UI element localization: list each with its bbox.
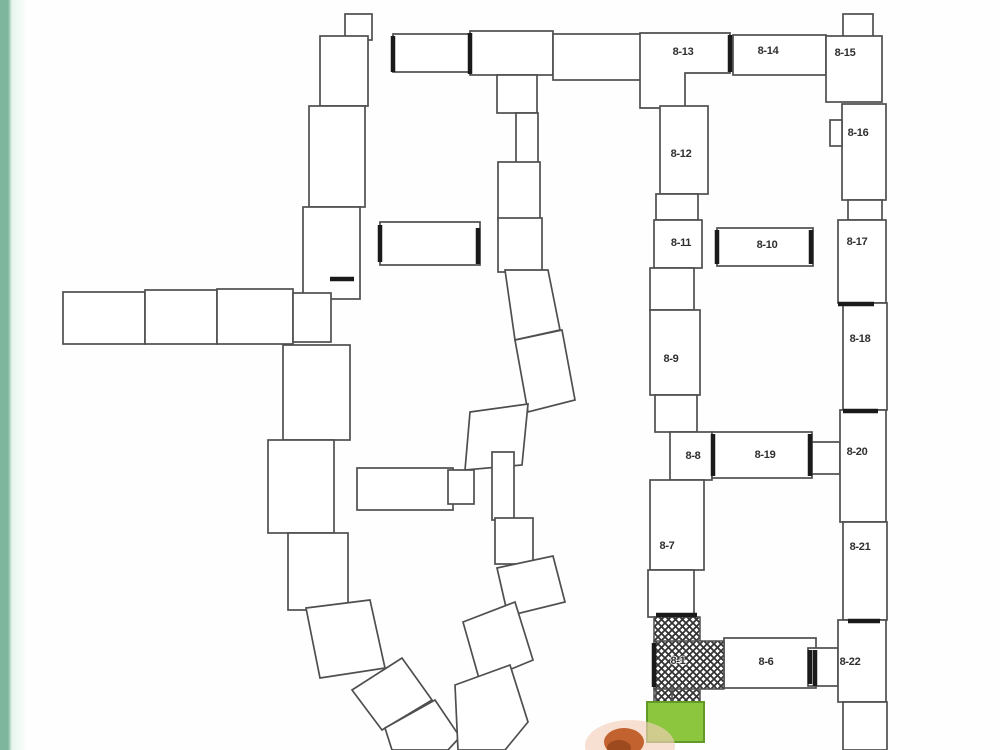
building-label-8-14: 8-14	[758, 45, 780, 57]
building-outline	[357, 468, 453, 510]
building-outline	[516, 113, 538, 165]
hatched-area	[654, 641, 724, 689]
building-outline	[63, 292, 145, 344]
building-outline	[498, 218, 542, 272]
building-outline	[650, 268, 694, 310]
building-outline	[843, 14, 873, 38]
building-outline	[448, 470, 474, 504]
building-outline	[293, 293, 331, 342]
building-label-8-19: 8-19	[755, 449, 776, 461]
building-outline	[650, 480, 704, 570]
building-outline	[842, 104, 886, 200]
site-plan-map: 8-18-68-78-88-98-108-118-128-138-148-158…	[0, 0, 1000, 750]
building-outline	[497, 75, 537, 113]
building-outline	[303, 207, 360, 299]
building-outline	[830, 120, 842, 146]
building-outlines-connector-bars	[712, 35, 840, 688]
building-outline	[495, 518, 533, 564]
building-outline	[843, 303, 887, 410]
building-outlines-middle-column	[640, 33, 730, 617]
building-label-8-10: 8-10	[757, 239, 778, 251]
building-outline	[648, 570, 694, 617]
building-outline	[470, 31, 553, 75]
building-label-8-7: 8-7	[660, 540, 675, 552]
bold-junction-lines	[330, 33, 880, 687]
building-outlines-right-column	[826, 14, 887, 750]
building-label-8-6: 8-6	[759, 656, 774, 668]
building-outline	[812, 442, 840, 474]
building-outline	[838, 220, 886, 303]
building-outline	[498, 162, 540, 220]
building-outline	[843, 522, 887, 620]
building-outline	[733, 35, 826, 75]
building-outline	[306, 600, 385, 678]
building-outline	[553, 34, 645, 80]
building-label-8-11: 8-11	[671, 237, 691, 249]
building-label-8-21: 8-21	[850, 541, 871, 553]
building-label-8-18: 8-18	[850, 333, 871, 345]
building-outline	[848, 200, 882, 220]
building-label-8-9: 8-9	[664, 353, 679, 365]
building-label-8-17: 8-17	[847, 236, 868, 248]
building-label-8-16: 8-16	[848, 127, 869, 139]
building-outline	[455, 665, 528, 750]
building-outline	[808, 648, 838, 686]
hatched-building-8-1	[654, 617, 724, 715]
building-label-8-8: 8-8	[686, 450, 701, 462]
building-outline	[268, 440, 334, 533]
building-outline	[655, 395, 697, 432]
building-outline	[843, 702, 887, 750]
building-outline	[656, 194, 698, 220]
building-outline	[826, 36, 882, 102]
building-outline	[515, 330, 575, 412]
building-label-8-12: 8-12	[671, 148, 692, 160]
building-outline	[492, 452, 514, 520]
building-label-8-22: 8-22	[840, 656, 861, 668]
building-outline	[640, 33, 730, 108]
building-outline	[393, 34, 470, 72]
building-label-8-1: 8-1	[671, 655, 686, 667]
building-outline	[145, 290, 217, 344]
building-outline	[380, 222, 480, 265]
building-label-8-20: 8-20	[847, 446, 868, 458]
building-outline	[320, 36, 368, 106]
building-outlines-left-complex	[63, 14, 645, 750]
building-outline	[283, 345, 350, 440]
building-outline	[840, 410, 886, 522]
building-outline	[505, 270, 560, 340]
building-label-8-15: 8-15	[835, 47, 856, 59]
site-plan-viewer: 8-18-68-78-88-98-108-118-128-138-148-158…	[0, 0, 1000, 750]
building-outline	[309, 106, 365, 207]
building-label-8-13: 8-13	[673, 46, 694, 58]
building-outline	[217, 289, 293, 344]
building-outline	[288, 533, 348, 610]
